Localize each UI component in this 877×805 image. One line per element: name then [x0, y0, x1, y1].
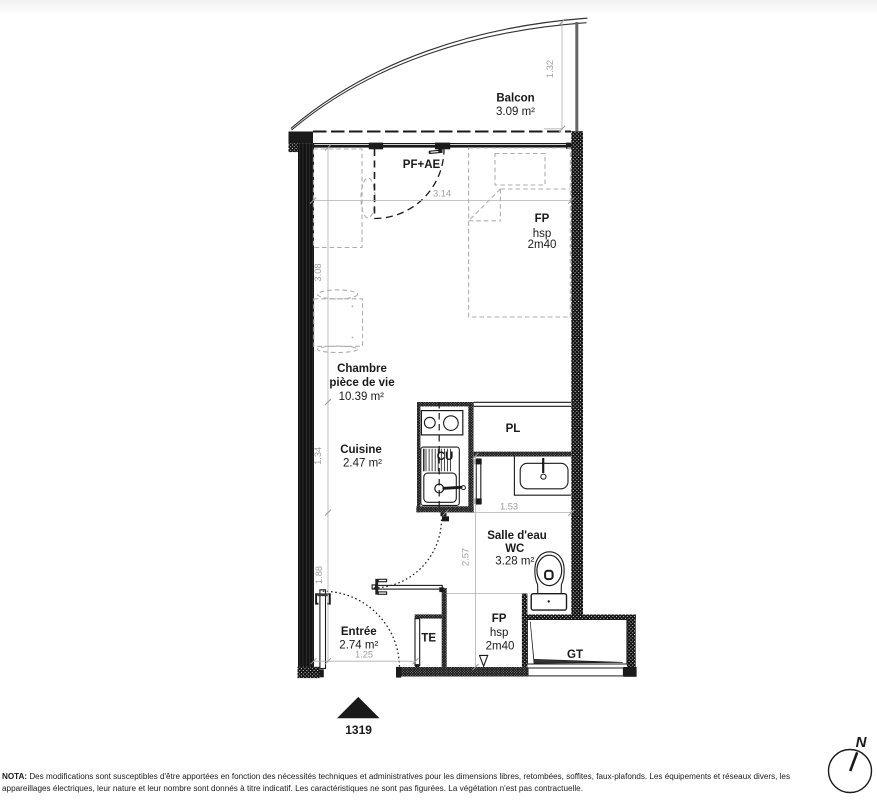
svg-text:3.08: 3.08 [313, 263, 323, 281]
svg-text:hsp: hsp [490, 627, 509, 639]
svg-text:Cuisine: Cuisine [340, 444, 382, 456]
svg-text:1.32: 1.32 [545, 60, 555, 78]
svg-text:1.34: 1.34 [313, 447, 323, 465]
svg-text:pièce de vie: pièce de vie [329, 377, 394, 389]
svg-text:2m40: 2m40 [486, 641, 515, 653]
svg-text:1319: 1319 [345, 723, 372, 737]
svg-text:10.39 m²: 10.39 m² [339, 391, 385, 403]
svg-text:3.09 m²: 3.09 m² [496, 106, 535, 118]
svg-text:CU: CU [437, 451, 454, 463]
svg-text:PL: PL [506, 423, 521, 435]
svg-text:Entrée: Entrée [341, 626, 377, 638]
svg-text:NOTA: Des modifications sont s: NOTA: Des modifications sont susceptible… [2, 772, 790, 781]
svg-text:2.74 m²: 2.74 m² [339, 640, 378, 652]
svg-text:N: N [856, 734, 868, 751]
svg-text:GT: GT [567, 649, 583, 661]
svg-text:Salle d'eau: Salle d'eau [487, 530, 547, 542]
svg-text:WC: WC [505, 543, 524, 555]
svg-text:1.53: 1.53 [500, 502, 518, 512]
svg-text:TE: TE [421, 633, 436, 645]
svg-text:appareillages électriques, leu: appareillages électriques, leur nature e… [2, 784, 583, 793]
svg-text:Chambre: Chambre [337, 363, 387, 375]
svg-text:2.57: 2.57 [461, 548, 471, 566]
svg-text:PF+AE: PF+AE [403, 159, 441, 171]
svg-text:Balcon: Balcon [496, 93, 534, 105]
svg-text:2m40: 2m40 [528, 239, 557, 251]
svg-text:hsp: hsp [533, 228, 552, 240]
svg-text:FP: FP [492, 613, 507, 625]
svg-text:1.88: 1.88 [314, 566, 324, 584]
svg-text:2.47 m²: 2.47 m² [343, 458, 382, 470]
svg-text:FP: FP [535, 213, 550, 225]
svg-text:3.28 m²: 3.28 m² [495, 556, 534, 568]
svg-text:3.14: 3.14 [433, 189, 451, 199]
